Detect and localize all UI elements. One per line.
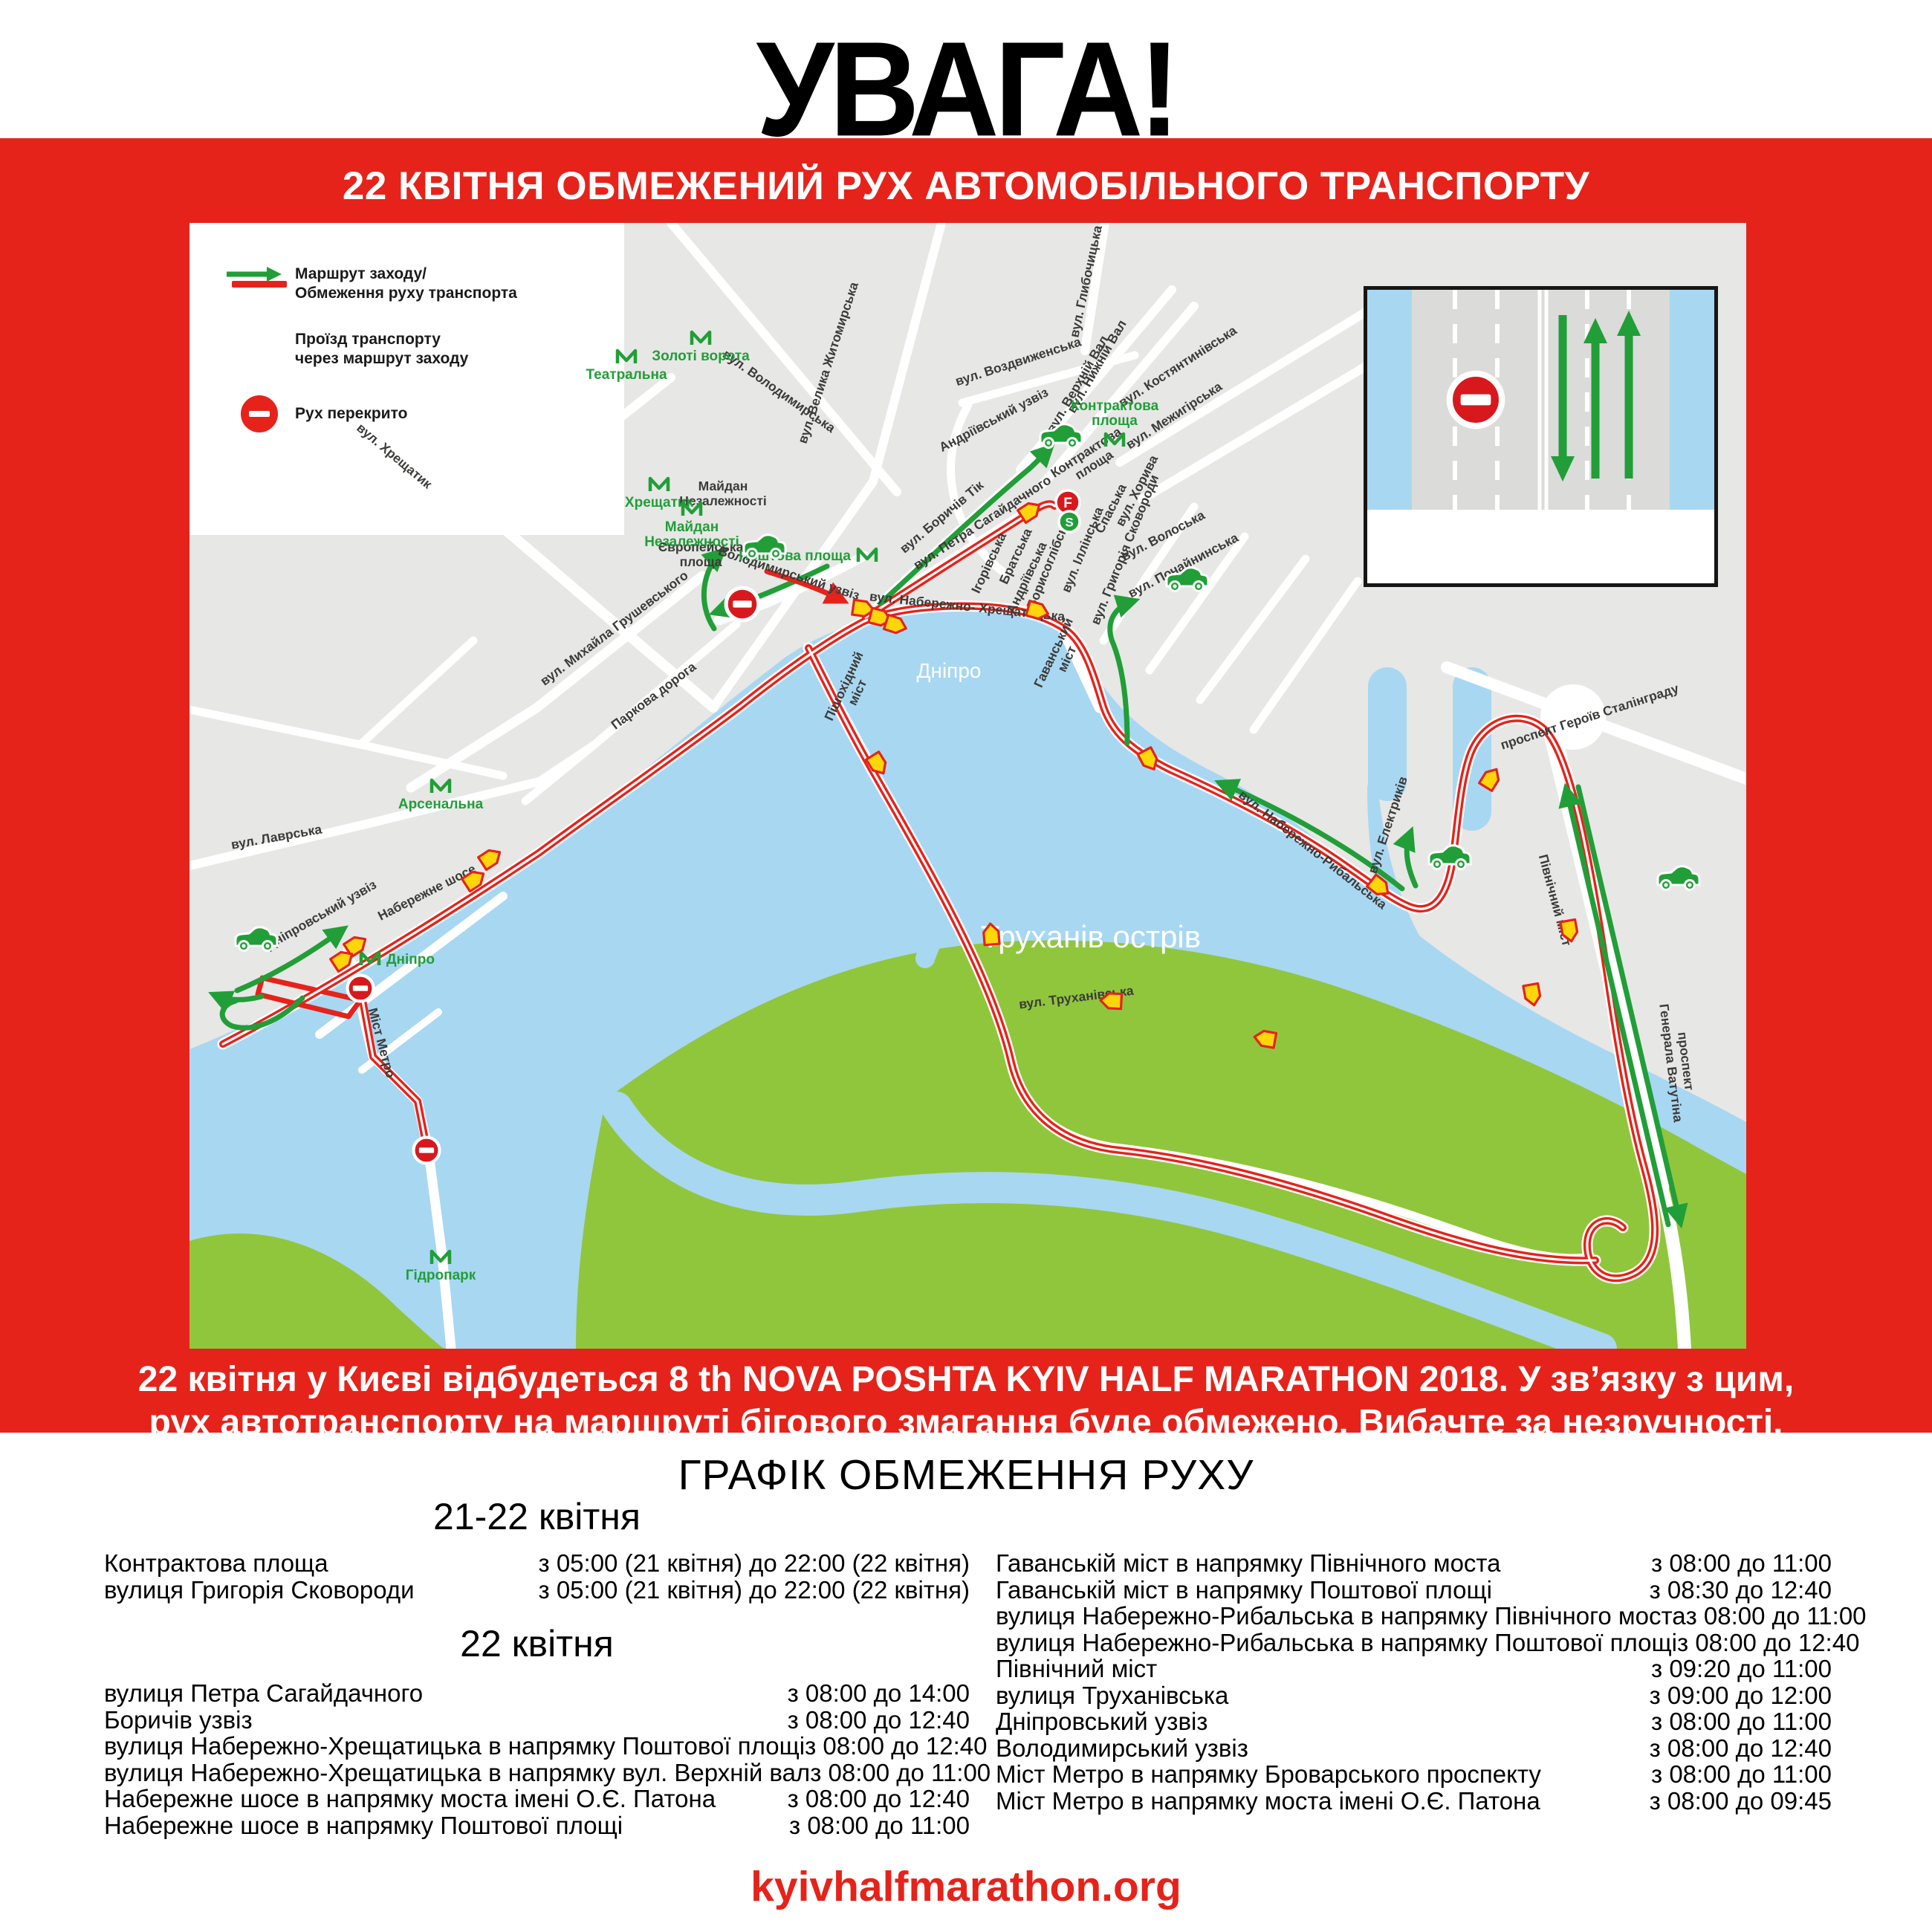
restriction-row: Боричів узвізз 08:00 до 12:40 [104,1707,970,1734]
legend-text: Обмеження руху транспорта [295,284,517,303]
event-notice: 22 квітня у Києві відбудеться 8 th NOVA … [0,1358,1932,1445]
schedule-group-22: 22 квітня [104,1622,970,1665]
legend-item-closed: Рух перекрито [224,395,573,432]
restriction-row: вулиця Набережно-Рибальська в напрямку П… [996,1630,1832,1656]
restriction-time: з 05:00 (21 квітня) до 22:00 (22 квітня) [539,1550,970,1577]
restriction-row: Володимирський узвізз 08:00 до 12:40 [996,1735,1832,1762]
restriction-row: Дніпровський узвізз 08:00 до 11:00 [996,1708,1832,1735]
restriction-row: Міст Метро в напрямку Броварського просп… [996,1761,1832,1788]
restriction-row: вулиця Набережно-Хрещатицька в напрямку … [104,1760,970,1786]
restriction-time: з 05:00 (21 квітня) до 22:00 (22 квітня) [539,1577,970,1604]
restriction-street: Міст Метро в напрямку Броварського просп… [996,1761,1541,1788]
restriction-street: вулиця Петра Сагайдачного [104,1680,423,1707]
metro-station-name: Золоті ворота [652,349,750,364]
banner-subtitle: 22 КВІТНЯ ОБМЕЖЕНИЙ РУХ АВТОМОБІЛЬНОГО Т… [0,163,1932,209]
restriction-time: з 08:00 до 12:40 [1677,1630,1859,1656]
restriction-street: Міст Метро в напрямку моста імені О.Є. П… [996,1788,1540,1815]
restriction-time: з 08:00 до 12:40 [805,1733,987,1760]
map-label: Труханів острів [981,919,1201,954]
restriction-street: вулиця Набережно-Хрещатицька в напрямку … [104,1760,810,1786]
restriction-street: Гаванській міст в напрямку Поштової площ… [996,1577,1492,1604]
legend-text: Рух перекрито [295,404,407,424]
no-entry-icon [726,588,759,620]
restriction-row: вулиця Григорія Сковородиз 05:00 (21 кві… [104,1577,970,1604]
restriction-street: Дніпровський узвіз [996,1708,1207,1735]
restriction-street: Контрактова площа [104,1550,328,1577]
restriction-street: вулиця Григорія Сковороди [104,1577,415,1604]
green-arrow-icon [224,265,283,284]
schedule-heading: ГРАФІК ОБМЕЖЕННЯ РУХУ [0,1450,1932,1500]
metro-station-name: Дніпро [386,952,435,967]
restriction-time: з 08:00 до 11:00 [1651,1708,1832,1735]
restriction-row: Гаванській міст в напрямку Поштової площ… [996,1577,1832,1604]
restriction-time: з 08:00 до 12:40 [788,1786,970,1812]
restriction-row: вулиця Петра Сагайдачногоз 08:00 до 14:0… [104,1680,970,1707]
restriction-time: з 08:00 до 11:00 [789,1812,970,1839]
restriction-time: з 09:20 до 11:00 [1651,1656,1832,1682]
footer-url[interactable]: kyivhalfmarathon.org [0,1862,1932,1911]
restriction-street: вулиця Набережно-Хрещатицька в напрямку … [104,1733,805,1760]
restriction-time: з 08:00 до 12:40 [1650,1735,1832,1762]
restriction-row: Контрактова площаз 05:00 (21 квітня) до … [104,1550,970,1577]
bridge-lanes-diagram [1367,290,1714,510]
restriction-street: вулиця Труханівська [996,1682,1228,1709]
restriction-time: з 08:00 до 11:00 [1651,1761,1832,1788]
restriction-row: Гаванській міст в напрямку Північного мо… [996,1550,1832,1577]
metro-station-name: Арсенальна [398,797,484,812]
restriction-street: Набережне шосе в напрямку моста імені О.… [104,1786,716,1812]
restriction-time: з 08:00 до 09:45 [1650,1788,1832,1815]
map-label: Дніпро [917,659,982,682]
legend-text: Проїзд транспорту [295,330,468,349]
restriction-street: Боричів узвіз [104,1707,253,1734]
red-banner: 22 КВІТНЯ ОБМЕЖЕНИЙ РУХ АВТОМОБІЛЬНОГО Т… [0,138,1932,1433]
restriction-street: Набережне шосе в напрямку Поштової площі [104,1812,623,1839]
restriction-row: вулиця Набережно-Рибальська в напрямку П… [996,1603,1832,1630]
no-entry-icon [414,1138,440,1164]
restriction-street: Північний міст [996,1656,1157,1682]
schedule-group-21-22: 21-22 квітня [104,1495,970,1538]
restriction-time: з 08:00 до 12:40 [788,1707,970,1734]
no-entry-icon [1450,374,1502,426]
notice-line-1: 22 квітня у Києві відбудеться 8 th NOVA … [0,1358,1932,1401]
finish-label: F [1063,496,1072,511]
restriction-time: з 08:00 до 14:00 [788,1680,970,1707]
restriction-row: Північний містз 09:20 до 11:00 [996,1656,1832,1682]
restriction-street: вулиця Набережно-Рибальська в напрямку П… [996,1630,1677,1656]
restriction-time: з 08:00 до 11:00 [1651,1550,1832,1577]
restriction-row: Міст Метро в напрямку моста імені О.Є. П… [996,1788,1832,1815]
legend-text: Маршрут заходу/ [295,265,517,284]
restriction-street: Володимирський узвіз [996,1735,1248,1762]
restriction-row: вулиця Набережно-Хрещатицька в напрямку … [104,1733,970,1760]
schedule-right-column: Гаванській міст в напрямку Північного мо… [996,1550,1832,1814]
metro-station-name: Театральна [586,367,667,383]
notice-line-2: рух автотранспорту на маршруті бігового … [0,1401,1932,1445]
route-map: вул. Хрещатиквул. Володимирськавул. Вели… [189,223,1746,1349]
legend-text: через маршрут заходу [295,349,468,369]
no-entry-icon [348,976,374,1002]
no-entry-icon [241,395,278,432]
start-marker: S [1059,511,1080,532]
restriction-time: з 08:30 до 12:40 [1650,1577,1832,1604]
map-legend: Маршрут заходу/Обмеження руху транспорта… [224,265,573,459]
restriction-street: вулиця Набережно-Рибальська в напрямку П… [996,1603,1686,1630]
restriction-row: Набережне шосе в напрямку Поштової площі… [104,1812,970,1839]
restriction-street: Гаванській міст в напрямку Північного мо… [996,1550,1501,1577]
schedule-left-column: Контрактова площаз 05:00 (21 квітня) до … [104,1550,970,1838]
bridge-scheme-inset: Схема руху на Північному мосту від м.Пет… [1364,286,1718,587]
restriction-time: з 08:00 до 11:00 [810,1760,991,1786]
legend-item-transit: Проїзд транспортучерез маршрут заходу [224,330,573,369]
metro-station-name: Гідропарк [406,1268,476,1283]
restriction-row: Набережне шосе в напрямку моста імені О.… [104,1786,970,1812]
restriction-time: з 08:00 до 11:00 [1686,1603,1867,1630]
start-label: S [1065,516,1073,530]
lane-direction-arrows [1551,311,1641,482]
restriction-time: з 09:00 до 12:00 [1650,1682,1832,1709]
restriction-row: вулиця Труханівськаз 09:00 до 12:00 [996,1682,1832,1709]
